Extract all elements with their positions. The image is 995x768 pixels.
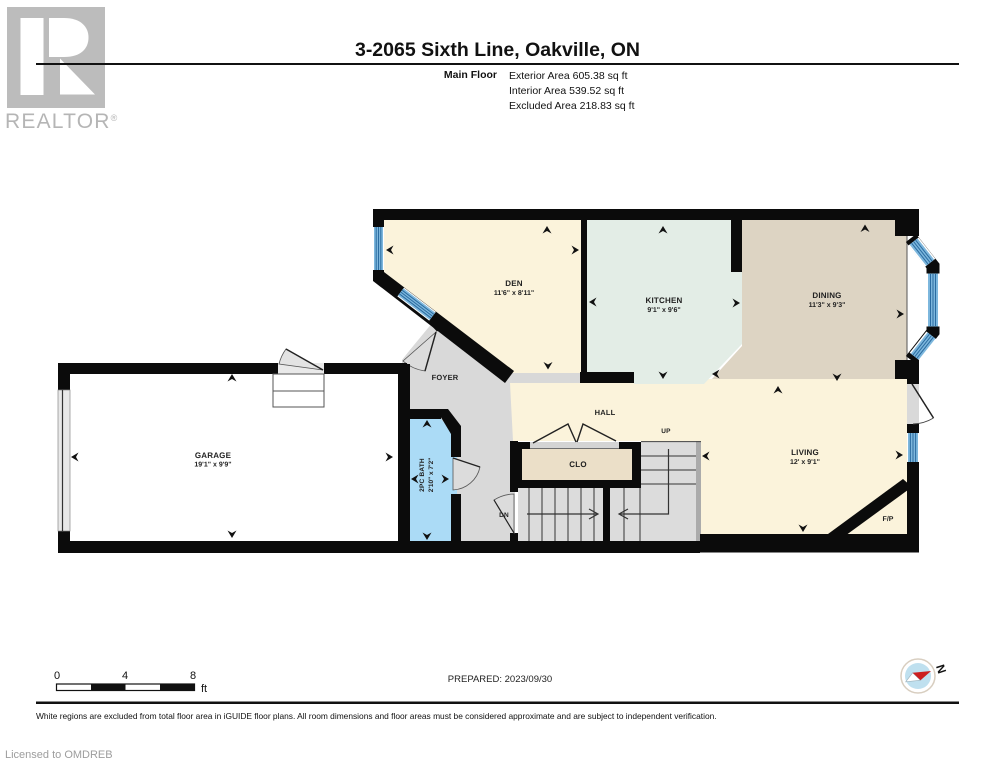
svg-text:0: 0	[54, 670, 60, 682]
svg-text:F/P: F/P	[883, 515, 894, 523]
svg-text:9'1" x 9'6": 9'1" x 9'6"	[647, 307, 680, 314]
svg-text:KITCHEN: KITCHEN	[646, 296, 683, 305]
svg-text:CLO: CLO	[569, 460, 587, 469]
svg-text:N: N	[933, 663, 949, 676]
svg-text:ft: ft	[201, 683, 207, 695]
svg-text:White regions are excluded fro: White regions are excluded from total fl…	[36, 711, 717, 721]
svg-text:11'3" x 9'3": 11'3" x 9'3"	[809, 302, 846, 309]
svg-text:LIVING: LIVING	[791, 448, 819, 457]
svg-text:PREPARED: 2023/09/30: PREPARED: 2023/09/30	[448, 674, 552, 685]
svg-text:8: 8	[190, 670, 196, 682]
svg-text:UP: UP	[661, 428, 671, 435]
svg-text:GARAGE: GARAGE	[195, 451, 232, 460]
svg-text:11'6" x 8'11": 11'6" x 8'11"	[494, 290, 534, 297]
svg-text:DINING: DINING	[812, 291, 841, 300]
svg-text:19'1" x 9'9": 19'1" x 9'9"	[194, 462, 231, 469]
svg-text:4: 4	[122, 670, 128, 682]
svg-text:DEN: DEN	[505, 279, 523, 288]
svg-text:Licensed to OMDREB: Licensed to OMDREB	[5, 749, 113, 761]
svg-text:FOYER: FOYER	[432, 373, 459, 382]
svg-text:HALL: HALL	[595, 408, 616, 417]
svg-text:12' x 9'1": 12' x 9'1"	[790, 459, 820, 466]
svg-text:2PC BATH: 2PC BATH	[419, 458, 426, 492]
svg-text:DN: DN	[499, 512, 509, 519]
svg-text:2'10" x 7'2": 2'10" x 7'2"	[428, 458, 435, 493]
